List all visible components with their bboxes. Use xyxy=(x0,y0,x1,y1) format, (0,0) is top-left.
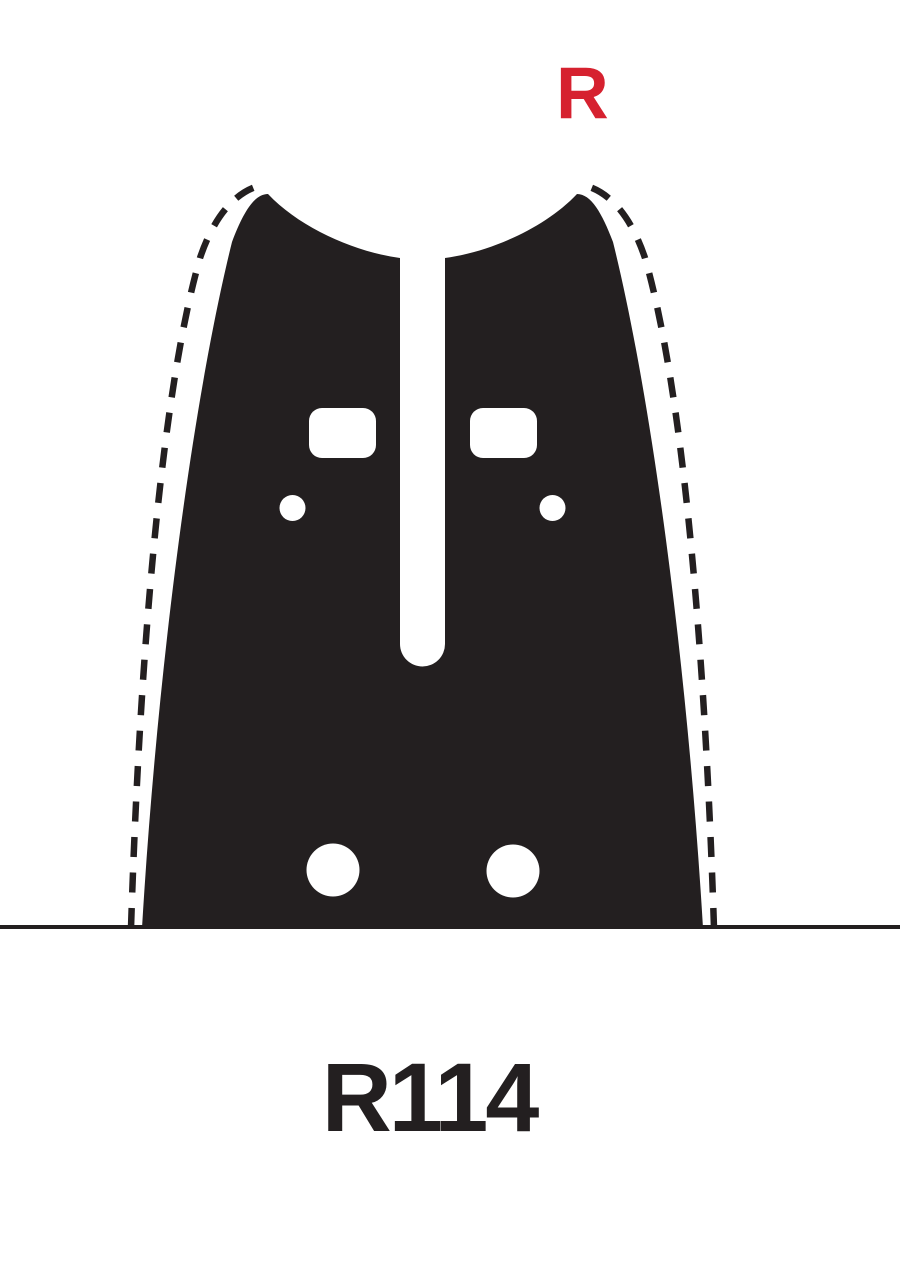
diagram-page: R R114 xyxy=(0,0,900,1272)
bar-tail-silhouette xyxy=(142,194,703,928)
oiler-hole-left xyxy=(280,495,306,521)
orientation-label: R xyxy=(556,57,608,130)
adjuster-hole-right xyxy=(470,408,537,458)
oiler-hole-right xyxy=(540,495,566,521)
adjuster-hole-left xyxy=(309,408,376,458)
bolt-hole-right xyxy=(487,845,540,898)
bolt-hole-left xyxy=(307,844,360,897)
model-number-label: R114 xyxy=(322,1049,537,1146)
